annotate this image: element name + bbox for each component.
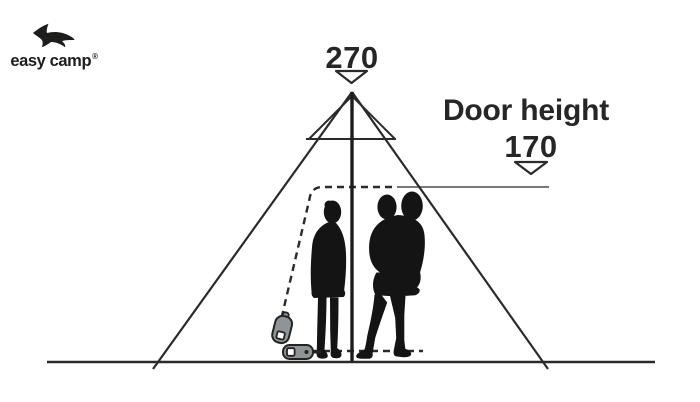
adult-silhouette <box>311 201 346 359</box>
zipper-pull-lower-icon <box>283 345 321 359</box>
door-height-arrow-icon <box>515 162 547 174</box>
peak-height-arrow-icon <box>336 71 367 83</box>
zipper-pull-upper-icon <box>271 310 295 344</box>
diagram-canvas <box>0 0 700 402</box>
adult-with-child-silhouette <box>356 192 425 359</box>
tent-dimensions-diagram: easy camp® 270 Door height 170 <box>0 0 700 402</box>
